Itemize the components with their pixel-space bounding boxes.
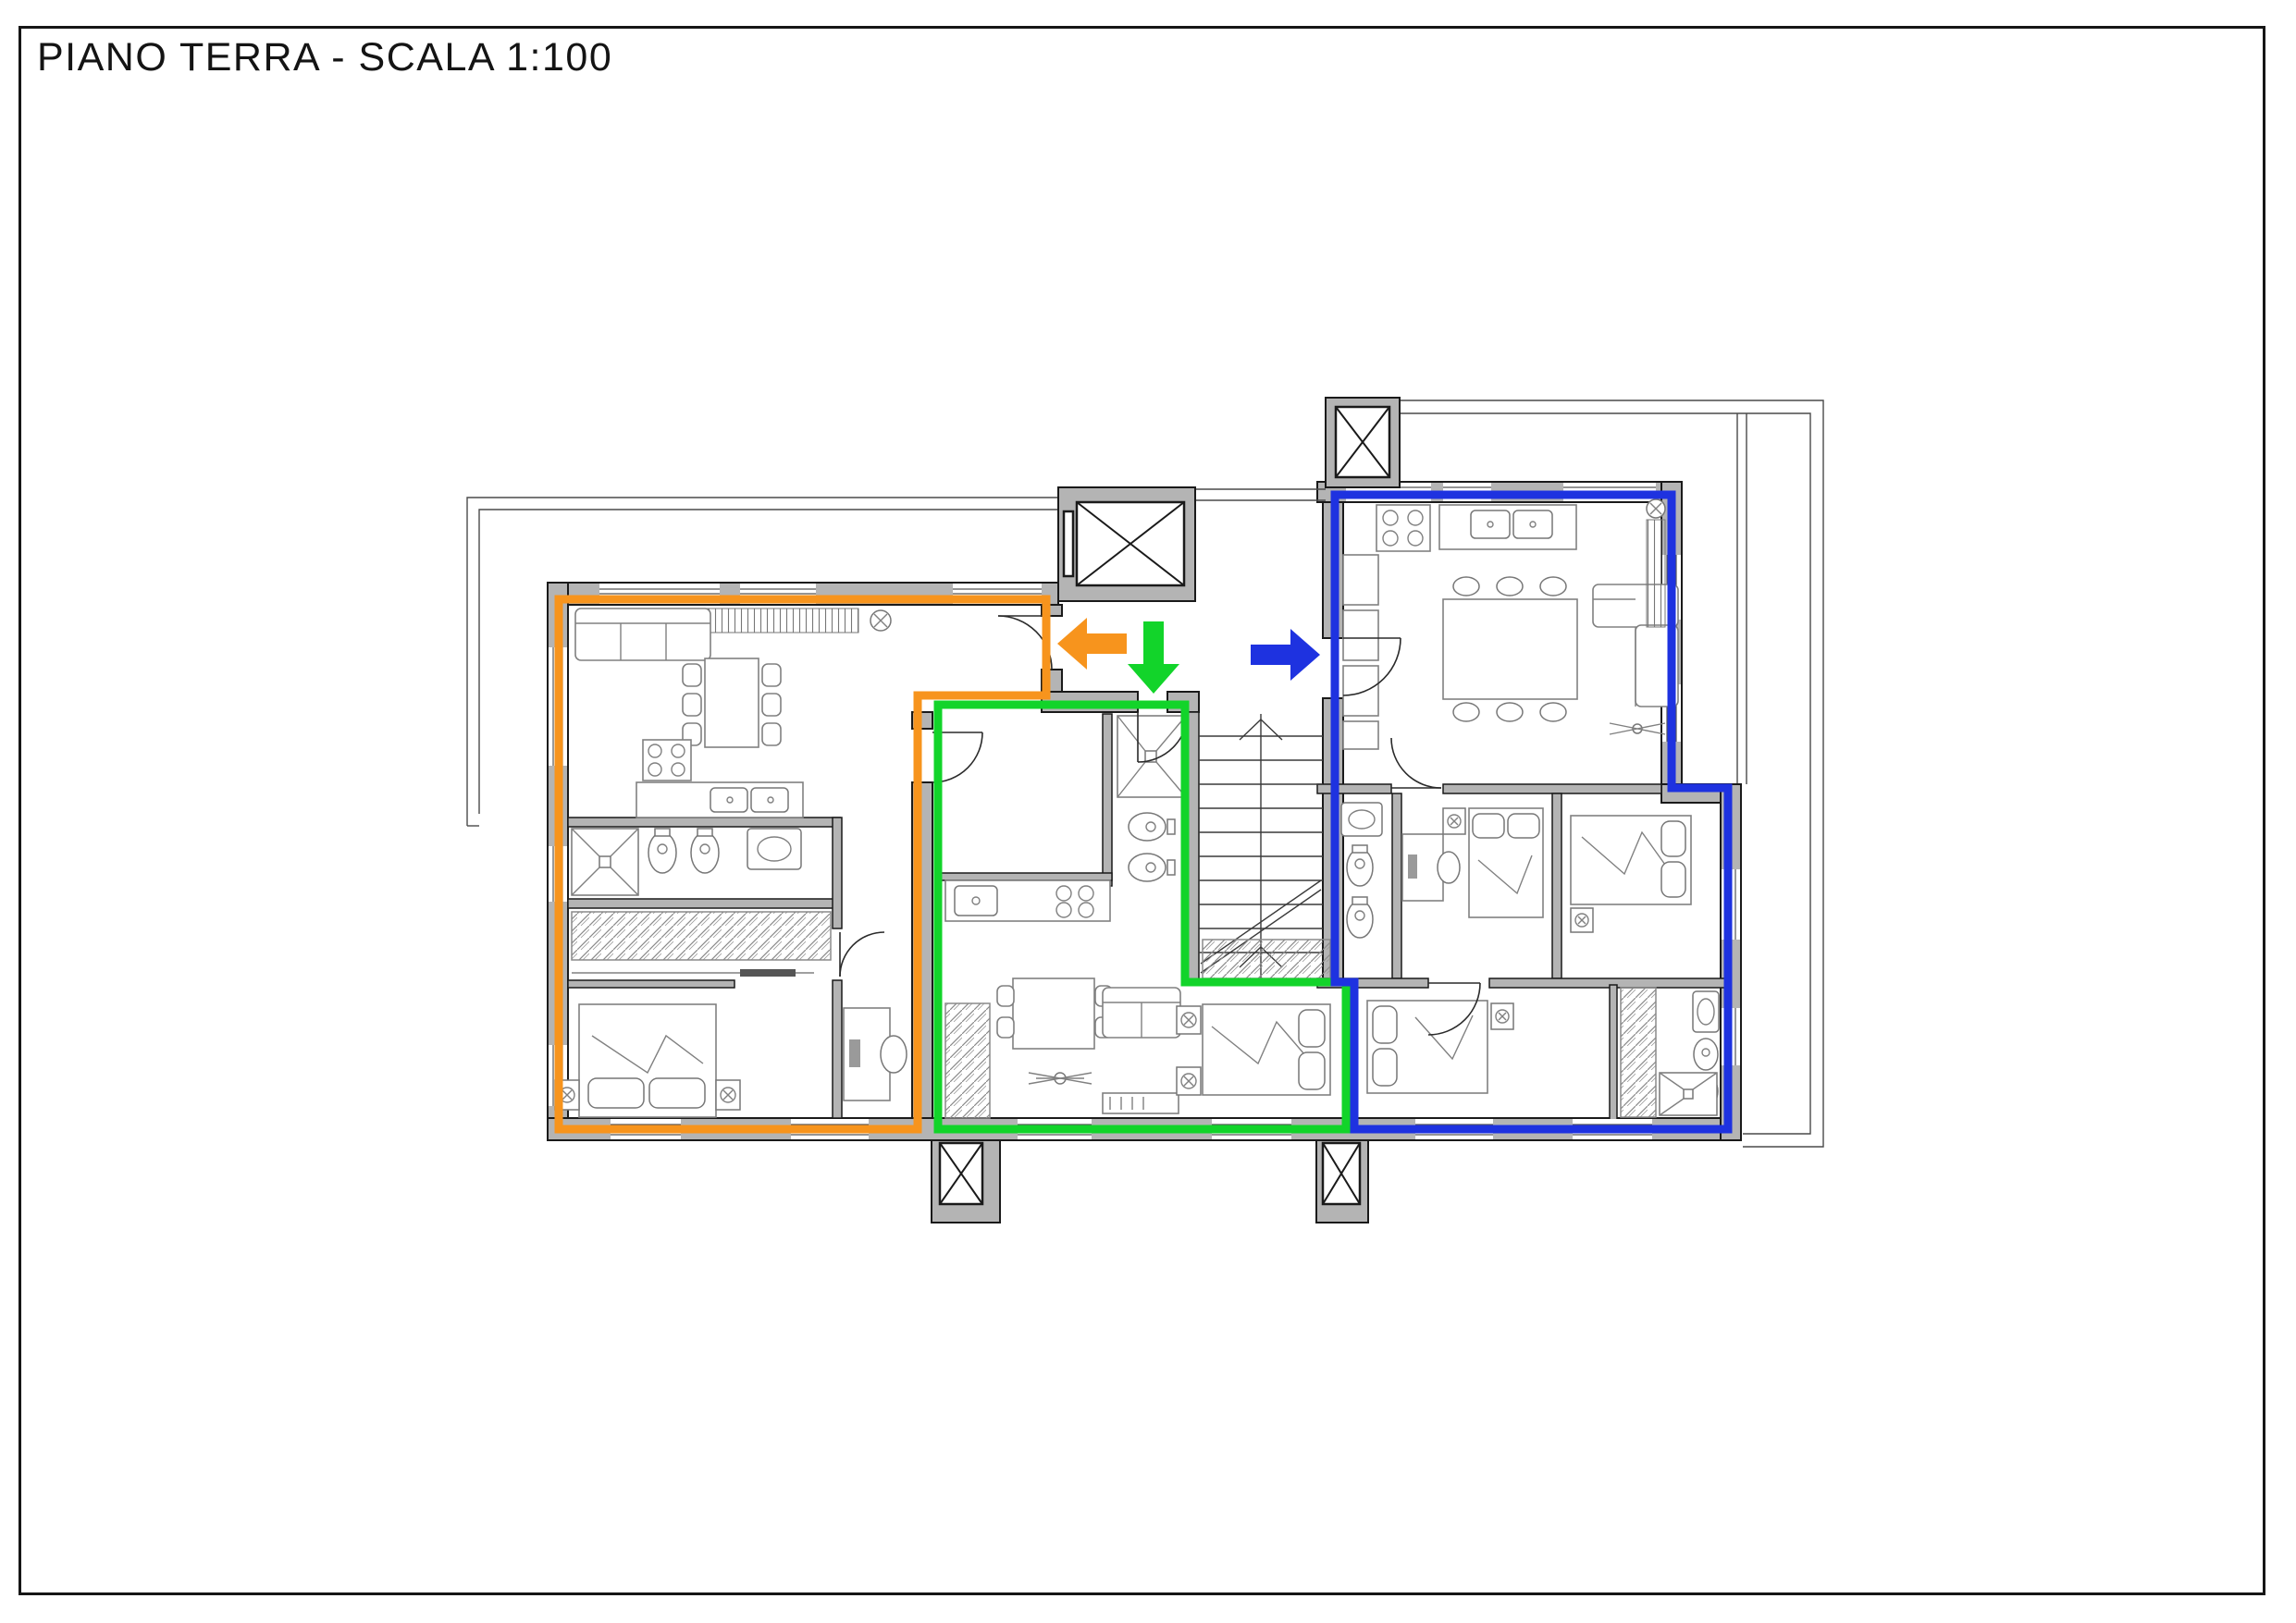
sink-icon (1693, 991, 1719, 1032)
ceiling-fan-icon (1029, 1073, 1092, 1084)
wardrobe-icon (1203, 940, 1330, 978)
apartment-middle-furniture (945, 716, 1330, 1118)
lamp-icon (716, 1080, 740, 1110)
shower-icon (1660, 1073, 1717, 1115)
stove-icon (643, 740, 691, 781)
bidet-icon (1347, 897, 1373, 938)
dining-table-icon (1443, 577, 1577, 721)
bidet-icon (648, 829, 676, 873)
sheet: PIANO TERRA - SCALA 1:100 (0, 0, 2296, 1623)
elevator-icon (1336, 407, 1389, 477)
bidet-icon (1694, 1039, 1718, 1070)
shaft-icon (932, 1140, 1000, 1223)
shower-icon (572, 829, 638, 895)
lamp-icon (1177, 1067, 1201, 1095)
door-swing-icon (840, 932, 884, 977)
shower-icon (1117, 716, 1186, 797)
entrance-arrow-left-icon (1057, 618, 1127, 670)
tv-bench-icon (1103, 1093, 1179, 1113)
lamp-icon (1491, 1003, 1513, 1029)
kitchen-sink-icon (636, 782, 803, 818)
wardrobe-icon (1621, 988, 1656, 1117)
dining-table-icon (997, 978, 1112, 1049)
fridge-icon (1343, 555, 1378, 749)
floor-plan (0, 0, 2296, 1623)
dining-table-icon (683, 658, 781, 747)
lamp-icon (1177, 1006, 1201, 1034)
lamp-icon (870, 610, 891, 631)
stove-icon (1376, 505, 1430, 551)
sofa-icon (1103, 988, 1180, 1038)
kitchen-sink-icon (1439, 505, 1576, 549)
bed-icon (1177, 1004, 1330, 1095)
toilet-icon (1347, 845, 1373, 886)
lamp-icon (1647, 499, 1665, 518)
desk-icon (1402, 834, 1460, 901)
sink-icon (1341, 803, 1382, 836)
door-swing-icon (1391, 738, 1441, 788)
wardrobe-icon (572, 912, 831, 960)
bed-icon (1571, 816, 1691, 932)
shaft-icon (1316, 1140, 1368, 1223)
lamp-icon (1571, 908, 1593, 932)
toilet-icon (1129, 854, 1175, 881)
apartment-left-furniture (555, 609, 907, 1117)
bidet-icon (1129, 813, 1175, 841)
bed-icon (1367, 1001, 1513, 1093)
elevator-icon (1064, 502, 1184, 585)
entrance-arrow-right-icon (1251, 629, 1320, 681)
toilet-icon (691, 829, 719, 873)
lamp-icon (1443, 808, 1465, 834)
sofa-icon (575, 609, 710, 660)
wardrobe-icon (945, 1003, 990, 1118)
bed-icon (555, 1004, 740, 1117)
desk-icon (844, 1008, 907, 1100)
entrance-arrow-down-icon (1128, 621, 1179, 694)
sink-icon (747, 829, 801, 869)
ceiling-fan-icon (1610, 723, 1665, 734)
